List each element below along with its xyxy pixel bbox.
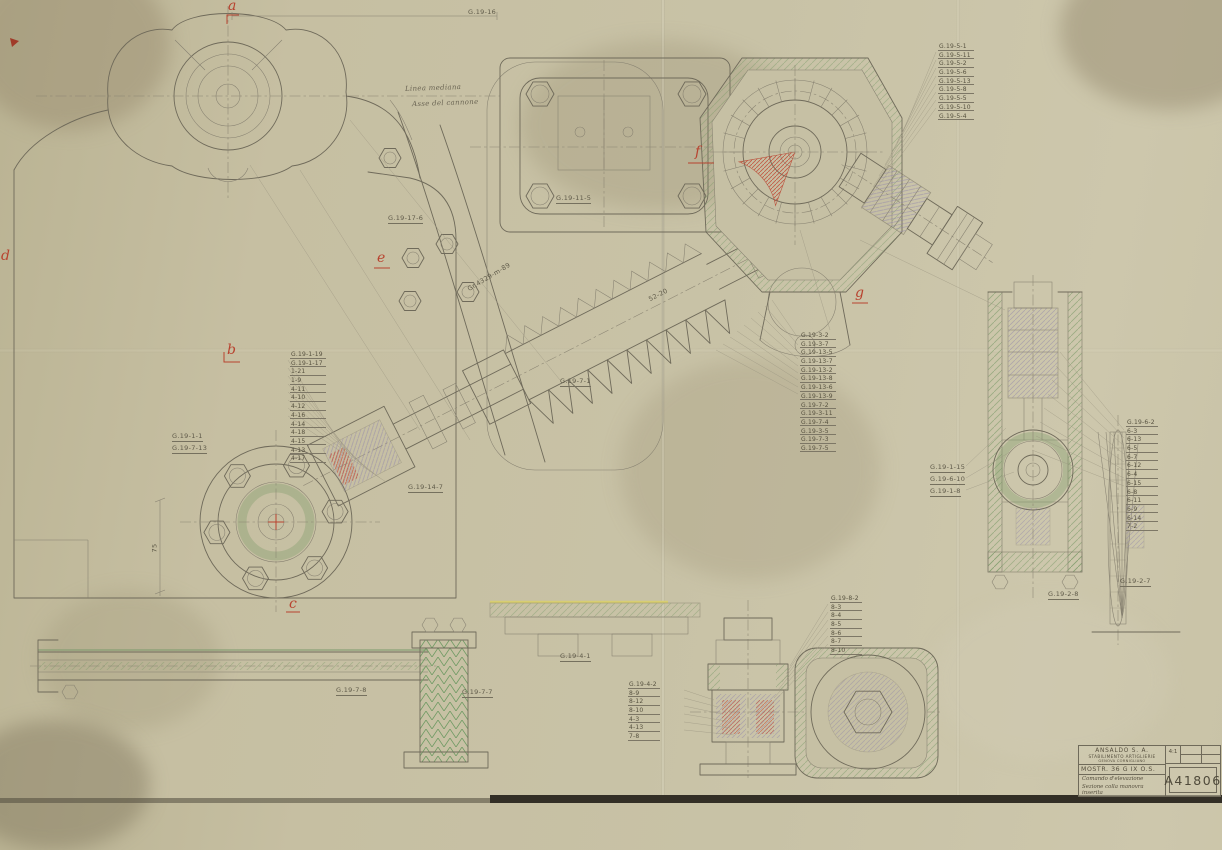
callout-item: G.19-5-5 — [938, 96, 974, 103]
callout-item: 4-11 — [290, 387, 326, 394]
annotation-g19-1-1: G.19-1-1 — [172, 432, 203, 442]
title-block-cells — [1181, 746, 1220, 763]
callout-item: 8-6 — [830, 631, 862, 638]
annotation-g19-6-10: G.19-6-10 — [930, 475, 965, 485]
callout-item: G.19-5-6 — [938, 70, 974, 77]
callout-item: 6-12 — [1126, 463, 1158, 470]
callout-item: G.19-5-4 — [938, 114, 974, 121]
title-block: ANSALDO S. A. STABILIMENTO ARTIGLIERIE G… — [1078, 745, 1221, 797]
blueprint-scan: { "document": { "type": "technical-drawi… — [0, 0, 1222, 803]
callout-list-bottom-right: G.19-8-28-38-48-58-68-78-10 — [830, 596, 862, 657]
callout-item: 7-2 — [1126, 524, 1158, 531]
callout-item: 4-18 — [290, 430, 326, 437]
callout-item: 6-15 — [1126, 481, 1158, 488]
callout-item: G.19-5-13 — [938, 79, 974, 86]
callout-item: G.19-13-6 — [800, 385, 836, 392]
index-letter-b: b — [227, 344, 236, 356]
callout-item: G.19-3-2 — [800, 333, 836, 340]
callout-item: G.19-6-2 — [1126, 420, 1158, 427]
callout-item: G.19-5-11 — [938, 53, 974, 60]
callout-item: 6-9 — [1126, 507, 1158, 514]
callout-item: 4-15 — [290, 439, 326, 446]
annotation-g19-1-8: G.19-1-8 — [930, 487, 961, 497]
callout-item: 4-13 — [628, 725, 660, 732]
callout-item: 4-17 — [290, 456, 326, 463]
callout-item: G.19-13-9 — [800, 394, 836, 401]
annotation-g19-7-1: G.19-7-1 — [560, 377, 591, 387]
callout-item: 4-10 — [290, 395, 326, 402]
callout-item: 6-8 — [1126, 490, 1158, 497]
callout-item: G.19-7-3 — [800, 437, 836, 444]
annotation-dim-75: 75 — [150, 544, 158, 553]
callout-item: G.19-7-4 — [800, 420, 836, 427]
callout-item: G.19-13-5 — [800, 350, 836, 357]
annotation-g19-7-7: G.19-7-7 — [462, 688, 493, 698]
callout-item: G.19-5-2 — [938, 61, 974, 68]
drawing-scale: 4:1 — [1166, 746, 1181, 763]
callout-item: G.19-3-5 — [800, 429, 836, 436]
title-block-right: 4:1 A41806 — [1166, 746, 1220, 796]
annotation-g19-1-15: G.19-1-15 — [930, 463, 965, 473]
drawing-subject-line2: Sezione colla manovra inserita — [1079, 783, 1165, 797]
callout-item: G.19-1-19 — [290, 352, 326, 359]
index-letter-f: f — [695, 146, 700, 158]
callout-item: 4-13 — [290, 448, 326, 455]
annotation-g19-14-7: G.19-14-7 — [408, 483, 443, 493]
callout-item: G.19-5-8 — [938, 87, 974, 94]
callout-list-center: G.19-3-2G.19-3-7G.19-13-5G.19-13-7G.19-1… — [800, 333, 836, 455]
company-name: ANSALDO S. A. — [1079, 746, 1165, 754]
index-letter-e: e — [377, 252, 385, 264]
drawing-ref: MOSTR. 36 G IX O.S. — [1079, 765, 1165, 775]
callout-item: G.19-13-8 — [800, 376, 836, 383]
callout-item: 6-11 — [1126, 498, 1158, 505]
drawing-subject-line1: Comando d'elevazione — [1079, 775, 1165, 783]
callout-item: 1-9 — [290, 378, 326, 385]
callout-item: 8-7 — [830, 639, 862, 646]
annotation-g19-4-1: G.19-4-1 — [560, 652, 591, 662]
callout-list-bottom-left: G.19-4-28-98-128-104-34-137-8 — [628, 682, 660, 743]
annotation-g19-2-8: G.19-2-8 — [1048, 590, 1079, 600]
callout-item: G.19-3-7 — [800, 342, 836, 349]
index-letter-c: c — [289, 598, 297, 610]
callout-item: 8-9 — [628, 691, 660, 698]
annotation-top-dim: G.19-16 — [468, 8, 496, 16]
callout-item: G.19-4-2 — [628, 682, 660, 689]
callout-item: 6-13 — [1126, 437, 1158, 444]
callout-item: 8-3 — [830, 605, 862, 612]
callout-item: 6-7 — [1126, 455, 1158, 462]
callout-item: 4-16 — [290, 413, 326, 420]
callout-list-top-right: G.19-5-1G.19-5-11G.19-5-2G.19-5-6G.19-5-… — [938, 44, 974, 122]
annotation-g19-17-6: G.19-17-6 — [388, 214, 423, 224]
annotation-g19-11-5: G.19-11-5 — [556, 194, 591, 204]
photo-edge-shadow — [0, 798, 490, 803]
callout-item: 8-10 — [628, 708, 660, 715]
callout-item: 4-3 — [628, 717, 660, 724]
callout-item: G.19-7-2 — [800, 403, 836, 410]
index-letter-a: a — [228, 0, 236, 12]
annotation-g19-2-7: G.19-2-7 — [1120, 577, 1151, 587]
index-letter-d: d — [1, 250, 10, 262]
callout-item: 8-10 — [830, 648, 862, 655]
callout-item: 8-12 — [628, 699, 660, 706]
view-right-section — [988, 275, 1082, 600]
callout-item: G.19-5-10 — [938, 105, 974, 112]
annotation-g19-7-8: G.19-7-8 — [336, 686, 367, 696]
callout-item: G.19-8-2 — [830, 596, 862, 603]
drawing-number: A41806 — [1169, 767, 1217, 793]
title-block-left: ANSALDO S. A. STABILIMENTO ARTIGLIERIE G… — [1079, 746, 1166, 796]
callout-list-right: G.19-6-26-36-136-56-76-126-46-156-86-116… — [1126, 420, 1158, 533]
callout-item: 7-8 — [628, 734, 660, 741]
title-block-minirow: 4:1 — [1166, 746, 1220, 764]
callout-list-left: G.19-1-19G.19-1-171-211-94-114-104-124-1… — [290, 352, 326, 465]
callout-item: 6-14 — [1126, 516, 1158, 523]
callout-item: 8-4 — [830, 613, 862, 620]
callout-item: 8-5 — [830, 622, 862, 629]
annotation-g19-7-13: G.19-7-13 — [172, 444, 207, 454]
callout-item: G.19-1-17 — [290, 361, 326, 368]
callout-item: 6-4 — [1126, 472, 1158, 479]
drawing-canvas — [0, 0, 1222, 803]
callout-item: 4-12 — [290, 404, 326, 411]
callout-item: G.19-13-2 — [800, 368, 836, 375]
callout-item: 6-3 — [1126, 429, 1158, 436]
callout-item: G.19-3-11 — [800, 411, 836, 418]
callout-item: 4-14 — [290, 422, 326, 429]
callout-item: 6-5 — [1126, 446, 1158, 453]
index-letter-g: g — [855, 287, 864, 299]
callout-item: G.19-5-1 — [938, 44, 974, 51]
callout-item: G.19-13-7 — [800, 359, 836, 366]
callout-item: 1-21 — [290, 369, 326, 376]
callout-item: G.19-7-5 — [800, 446, 836, 453]
